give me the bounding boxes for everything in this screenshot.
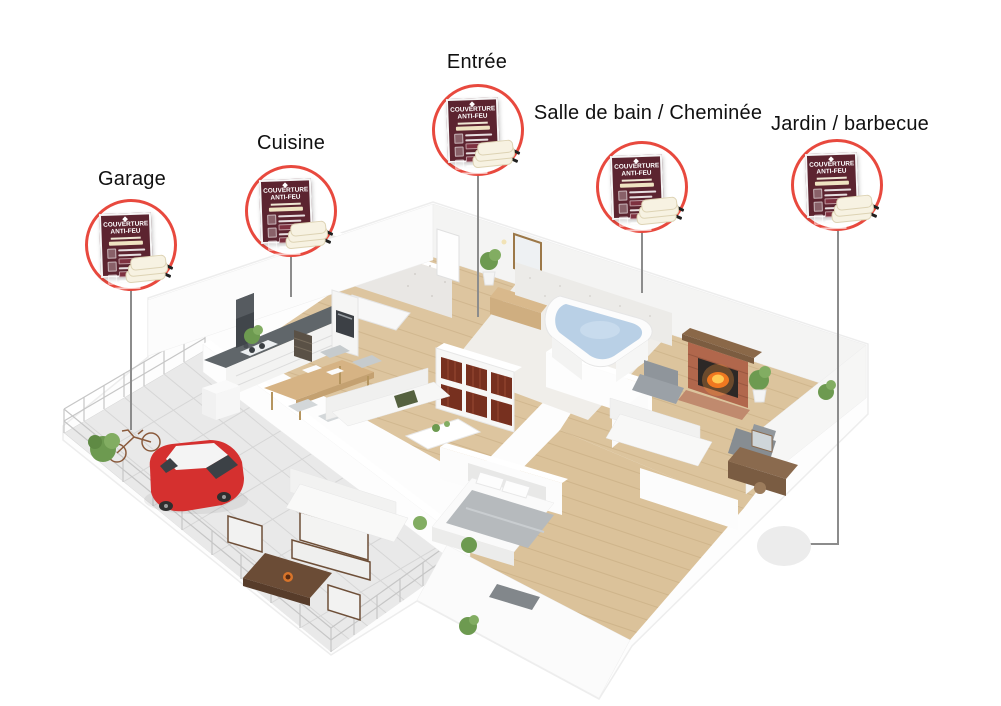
- packet-subtext-bar: [817, 177, 847, 180]
- packet-pictograms: [267, 215, 277, 251]
- packet-title-line2: ANTI-FEU: [614, 170, 658, 178]
- marker-label-cuisine: Cuisine: [257, 132, 325, 155]
- car: [144, 440, 248, 514]
- folded-blanket: [470, 137, 513, 169]
- packet-footer-bar: [461, 172, 487, 175]
- marker-label-garage: Garage: [98, 168, 166, 191]
- leader-line-salle-de-bain: [641, 231, 643, 293]
- packet-size-badge: [620, 183, 654, 188]
- marker-label-salle-de-bain: Salle de bain / Cheminée: [534, 102, 762, 125]
- marker-circle-jardin: COUVERTURE ANTI-FEU: [791, 139, 883, 231]
- packet-title-line2: ANTI-FEU: [263, 194, 307, 202]
- fire-blanket-packet: COUVERTURE ANTI-FEU: [446, 97, 500, 163]
- leader-line-jardin-vertical: [837, 227, 839, 545]
- packet-subtext-bar: [622, 179, 652, 182]
- packet-subtext-bar: [111, 237, 141, 240]
- fire-blanket-packet: COUVERTURE ANTI-FEU: [805, 152, 859, 218]
- figure: Garage COUVERTURE ANTI-FEU Cuisine COUVE…: [0, 0, 1001, 706]
- packet-size-badge: [269, 207, 303, 212]
- packet-size-badge: [456, 126, 490, 131]
- folded-blanket: [634, 194, 677, 226]
- packet-size-badge: [815, 181, 849, 186]
- packet-footer-bar: [625, 229, 651, 232]
- packet-pictograms: [813, 189, 823, 225]
- packet-title-line2: ANTI-FEU: [450, 113, 494, 121]
- packet-size-badge: [109, 241, 143, 246]
- packet-footer-bar: [114, 287, 140, 290]
- marker-circle-salle-de-bain: COUVERTURE ANTI-FEU: [596, 141, 688, 233]
- packet-footer-bar: [274, 253, 300, 256]
- packet-subtext-bar: [458, 122, 488, 125]
- packet-pictograms: [618, 191, 628, 227]
- marker-label-jardin: Jardin / barbecue: [771, 113, 929, 136]
- fire-blanket-packet: COUVERTURE ANTI-FEU: [610, 154, 664, 220]
- packet-title-line2: ANTI-FEU: [809, 168, 853, 176]
- leader-line-garage: [130, 287, 132, 430]
- jardin-target-ellipse: [757, 526, 811, 566]
- marker-circle-entree: COUVERTURE ANTI-FEU: [432, 84, 524, 176]
- folded-blanket: [283, 218, 326, 250]
- packet-subtext-bar: [271, 203, 301, 206]
- folded-blanket: [829, 192, 872, 224]
- packet-pictograms: [454, 134, 464, 170]
- leader-line-cuisine: [290, 253, 292, 297]
- fire-blanket-packet: COUVERTURE ANTI-FEU: [259, 178, 313, 244]
- packet-title-line2: ANTI-FEU: [103, 228, 147, 236]
- fire-blanket-packet: COUVERTURE ANTI-FEU: [99, 212, 153, 278]
- marker-label-entree: Entrée: [447, 51, 507, 74]
- packet-pictograms: [107, 249, 117, 285]
- leader-line-entree: [477, 174, 479, 317]
- folded-blanket: [123, 252, 166, 284]
- marker-circle-cuisine: COUVERTURE ANTI-FEU: [245, 165, 337, 257]
- packet-footer-bar: [820, 227, 846, 230]
- marker-circle-garage: COUVERTURE ANTI-FEU: [85, 199, 177, 291]
